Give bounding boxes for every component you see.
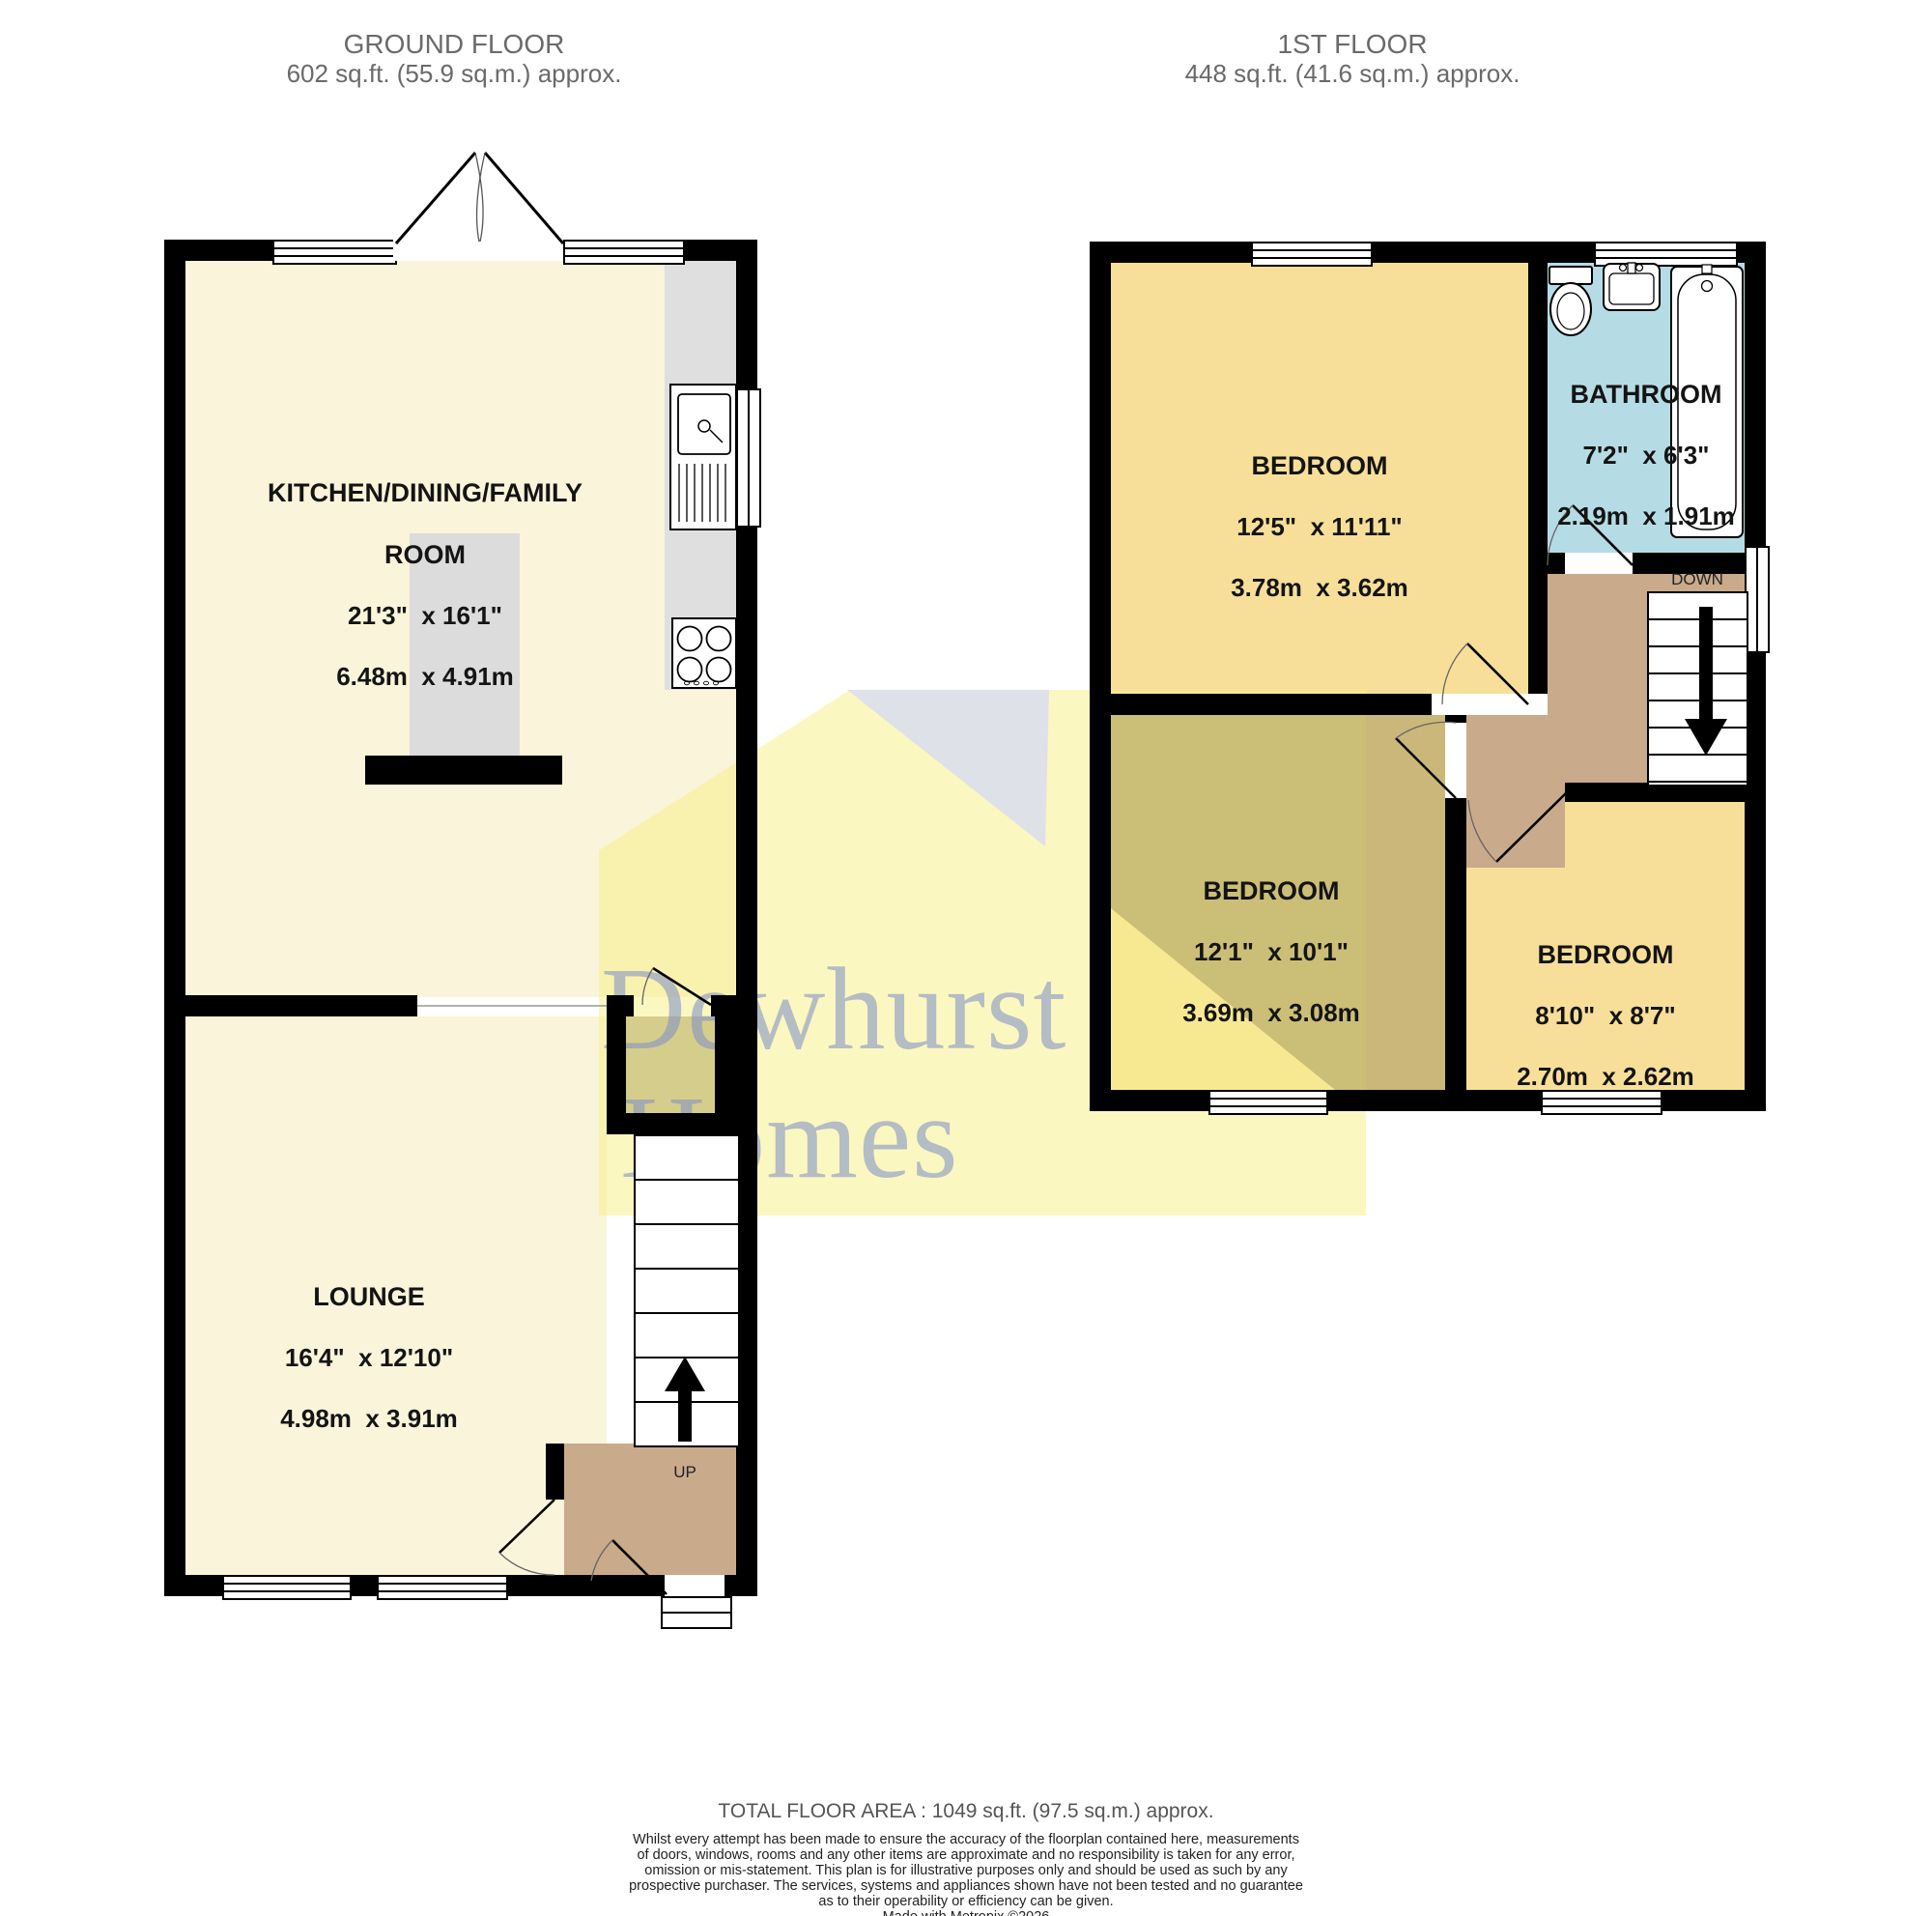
ground-floor-area: 602 sq.ft. (55.9 sq.m.) approx. — [164, 60, 744, 87]
french-doors — [396, 153, 563, 243]
bedroom1-label: BEDROOM 12'5" x 11'11" 3.78m x 3.62m — [1126, 417, 1513, 636]
bedroom3-door — [1468, 792, 1567, 862]
first-floor-title: 1ST FLOOR — [1063, 29, 1642, 60]
kitchen-label: KITCHEN/DINING/FAMILY ROOM 21'3" x 16'1"… — [232, 444, 618, 725]
first-floor-header: 1ST FLOOR 448 sq.ft. (41.6 sq.m.) approx… — [1063, 29, 1642, 87]
bathroom-label: BATHROOM 7'2" x 6'3" 2.19m x 1.91m — [1549, 346, 1743, 564]
disclaimer-line: omission or mis-statement. This plan is … — [0, 1863, 1932, 1878]
toilet — [1549, 267, 1592, 335]
ground-floor-header: GROUND FLOOR 602 sq.ft. (55.9 sq.m.) app… — [164, 29, 744, 87]
bedroom2-label: BEDROOM 12'1" x 10'1" 3.69m x 3.08m — [1078, 843, 1464, 1061]
down-label: DOWN — [1659, 570, 1736, 589]
bedroom1-door — [1442, 643, 1528, 704]
stairs-up-arrow — [665, 1357, 705, 1442]
up-label: UP — [656, 1463, 714, 1482]
bedroom2-door — [1396, 722, 1456, 798]
stairs-down-arrow — [1685, 607, 1727, 756]
hob — [672, 618, 736, 688]
disclaimer-line: prospective purchaser. The services, sys… — [0, 1878, 1932, 1894]
bedroom3-label: BEDROOM 8'10" x 8'7" 2.70m x 2.62m — [1412, 906, 1799, 1125]
lounge-label: LOUNGE 16'4" x 12'10" 4.98m x 3.91m — [224, 1248, 514, 1467]
ground-floor-title: GROUND FLOOR — [164, 29, 744, 60]
disclaimer-line: as to their operability or efficiency ca… — [0, 1894, 1932, 1909]
disclaimer-line: Whilst every attempt has been made to en… — [0, 1832, 1932, 1847]
lounge-door — [499, 1500, 554, 1575]
footer: TOTAL FLOOR AREA : 1049 sq.ft. (97.5 sq.… — [0, 1799, 1932, 1916]
storage-door — [642, 968, 711, 1005]
floorplan-page: GROUND FLOOR 602 sq.ft. (55.9 sq.m.) app… — [0, 0, 1932, 1916]
total-floor-area: TOTAL FLOOR AREA : 1049 sq.ft. (97.5 sq.… — [0, 1799, 1932, 1824]
kitchen-sink — [670, 385, 736, 529]
front-door — [591, 1540, 667, 1594]
bathroom-sink — [1604, 263, 1660, 310]
metropix-credit: Made with Metropix ©2026 — [0, 1909, 1932, 1916]
storage-label: STORAGE — [624, 1060, 717, 1091]
first-floor-area: 448 sq.ft. (41.6 sq.m.) approx. — [1063, 60, 1642, 87]
disclaimer-line: of doors, windows, rooms and any other i… — [0, 1847, 1932, 1863]
